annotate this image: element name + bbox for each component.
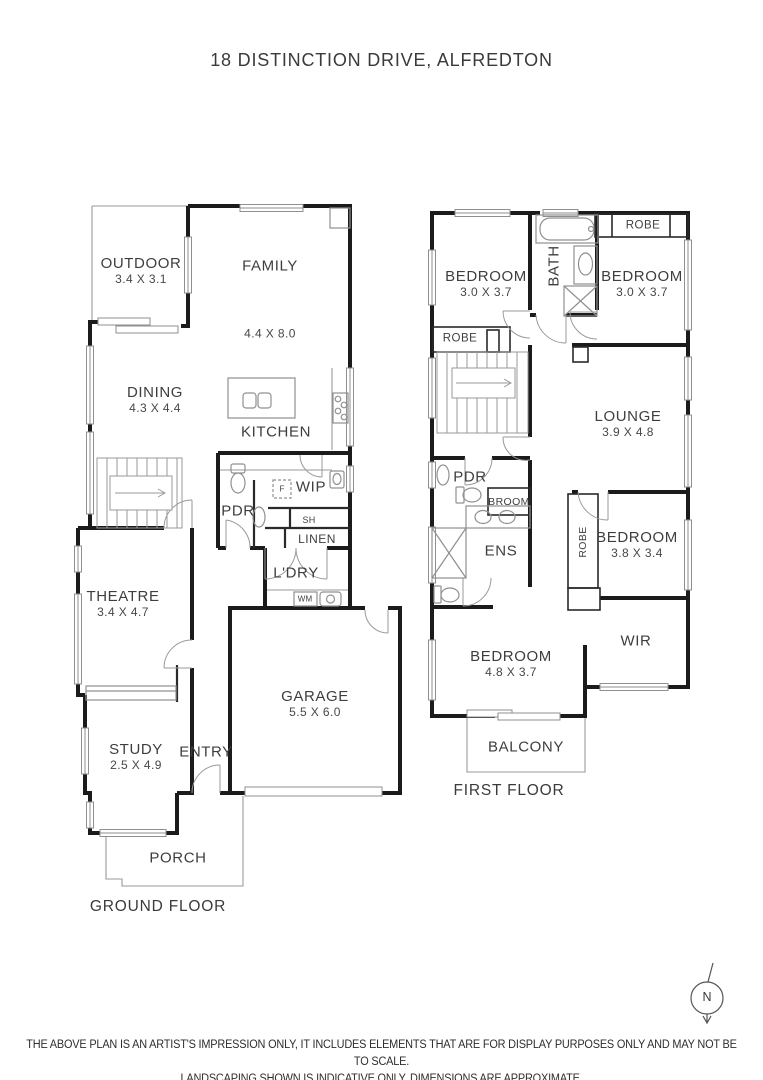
pdr-door [226,520,250,548]
room-label-garage: GARAGE 5.5 X 6.0 [281,688,349,720]
room-name: ENTRY [179,743,233,760]
ground-floor-plan [75,204,403,886]
room-name: GARAGE [281,688,349,705]
room-name: ROBE [443,332,478,345]
room-label-wip: WIP [296,478,326,495]
room-label-bedroom1: BEDROOM 3.0 X 3.7 [445,268,527,300]
laundry-trough [320,592,341,606]
room-label-robe-top: ROBE [626,219,661,232]
disclaimer: THE ABOVE PLAN IS AN ARTIST'S IMPRESSION… [19,1037,744,1080]
room-dim-family: 4.4 X 8.0 [244,327,296,342]
sliding-door-panel [116,326,178,333]
disclaimer-line-2: LANDSCAPING SHOWN IS INDICATIVE ONLY. DI… [19,1071,744,1080]
room-label-laundry: L'DRY [273,564,319,581]
room-label-bath: BATH [545,245,562,286]
room-name: BALCONY [488,738,564,755]
room-label-balcony: BALCONY [488,738,564,755]
room-dim: 4.4 X 8.0 [244,328,296,342]
room-name: SH [302,515,315,525]
room-label-outdoor: OUTDOOR 3.4 X 3.1 [101,255,182,287]
room-label-broom: BROOM [488,496,530,508]
room-label-family: FAMILY [242,257,298,274]
toilet-icon [231,464,245,473]
first-floor-title: FIRST FLOOR [454,782,565,800]
compass-letter: N [702,990,711,1004]
basin-icon [437,465,449,485]
room-label-theatre: THEATRE 3.4 X 4.7 [86,588,159,620]
room-dim: 3.8 X 3.4 [596,547,678,561]
label-shelf: SH [302,515,315,525]
room-label-lounge: LOUNGE 3.9 X 4.8 [595,408,662,440]
toilet-icon [434,586,441,603]
island-sink [258,393,271,408]
column [573,347,588,362]
room-name: LINEN [298,533,336,547]
room-name: BEDROOM [601,268,683,285]
ff-doors [463,311,608,606]
room-label-kitchen: KITCHEN [241,423,311,440]
room-dim: 4.8 X 3.7 [470,666,552,680]
room-label-entry: ENTRY [179,743,233,760]
bath-door [536,315,566,343]
room-label-wir: WIR [621,632,652,649]
room-label-bedroom3: BEDROOM 3.8 X 3.4 [596,529,678,561]
study-desk [86,686,176,700]
room-name: WIR [621,632,652,649]
label-washing-machine: WM [298,594,313,603]
room-label-bedroom2: BEDROOM 3.0 X 3.7 [601,268,683,300]
ground-floor-title: GROUND FLOOR [90,898,226,916]
room-name: PDR [221,502,254,519]
room-name: OUTDOOR [101,255,182,272]
room-label-bedroom4: BEDROOM 4.8 X 3.7 [470,648,552,680]
room-name: THEATRE [86,588,159,605]
gf-doors [164,455,388,793]
sliding-door-panel [98,318,150,325]
label-fridge: F [279,484,284,493]
kitchen-island [228,378,295,418]
study-door [164,640,192,668]
room-label-linen: LINEN [298,533,336,547]
room-name: ROBE [626,219,661,232]
room-name: STUDY [109,741,163,758]
room-name: DINING [127,384,183,401]
toilet-icon [231,473,245,493]
room-name: WIP [296,478,326,495]
room-name: F [279,484,284,493]
floorplan-page: 18 DISTINCTION DRIVE, ALFREDTON [0,0,763,1080]
column [330,208,350,228]
disclaimer-line-1: THE ABOVE PLAN IS AN ARTIST'S IMPRESSION… [19,1037,744,1071]
room-dim: 2.5 X 4.9 [109,759,163,773]
room-name: BEDROOM [470,648,552,665]
room-name: PDR [453,468,486,485]
room-label-dining: DINING 4.3 X 4.4 [127,384,183,416]
room-name: BEDROOM [445,268,527,285]
room-name: WM [298,594,313,603]
room-name: PORCH [149,849,206,866]
room-name: BEDROOM [596,529,678,546]
ens-door [463,578,491,606]
room-name: FAMILY [242,257,298,274]
garage-door-panel [245,787,382,796]
room-label-study: STUDY 2.5 X 4.9 [109,741,163,773]
room-dim: 3.0 X 3.7 [601,286,683,300]
room-name: LOUNGE [595,408,662,425]
room-dim: 3.4 X 3.1 [101,273,182,287]
room-label-porch: PORCH [149,849,206,866]
compass-north-label: N [702,990,711,1004]
garage-access-door [365,610,388,633]
room-label-robe-bed3: ROBE [577,526,589,557]
room-label-pdr-first: PDR [453,468,486,485]
floor-title-text: FIRST FLOOR [454,782,565,799]
room-dim: 5.5 X 6.0 [281,706,349,720]
ff-stairs [437,352,528,433]
room-name: BATH [545,245,562,286]
room-name: L'DRY [273,564,319,581]
room-name: KITCHEN [241,423,311,440]
room-label-pdr-ground: PDR [221,502,254,519]
sliding-door-panel [498,713,560,720]
bedroom1-door [503,311,530,338]
room-name: ROBE [577,526,589,557]
room-label-robe-left: ROBE [443,332,478,345]
room-name: ENS [485,542,518,559]
wip-door [300,455,322,477]
floor-title-text: GROUND FLOOR [90,898,226,915]
room-dim: 3.0 X 3.7 [445,286,527,300]
room-dim: 3.4 X 4.7 [86,606,159,620]
room-dim: 3.9 X 4.8 [595,426,662,440]
porch-outline [106,796,243,886]
room-name: BROOM [488,496,530,508]
island-sink [243,393,256,408]
room-label-ens: ENS [485,542,518,559]
front-entry-door [192,765,220,793]
gf-stairs [97,458,182,528]
bedroom3-door [578,492,608,520]
bath-vanity [574,246,597,284]
room-dim: 4.3 X 4.4 [127,402,183,416]
